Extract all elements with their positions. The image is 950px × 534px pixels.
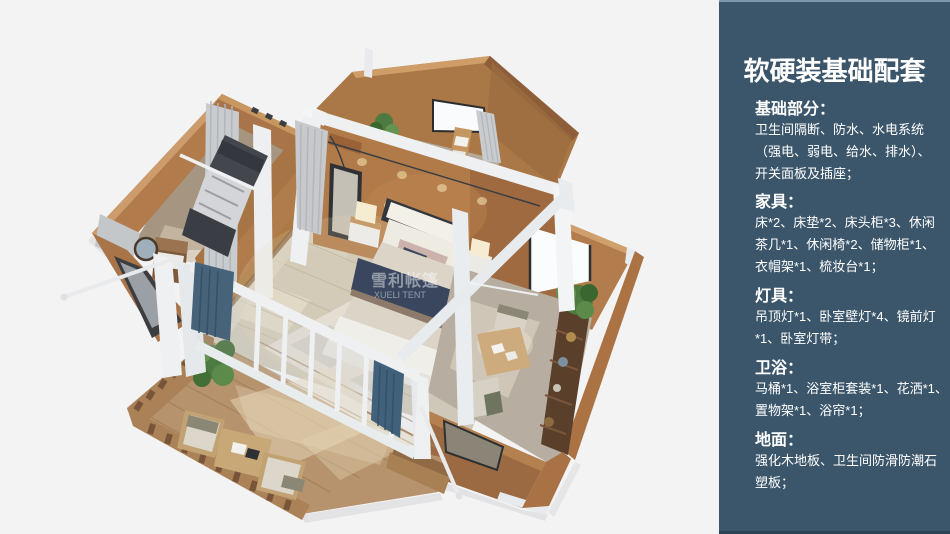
svg-text:XUELI TENT: XUELI TENT — [374, 290, 426, 300]
svg-text:雪利帐篷: 雪利帐篷 — [371, 271, 439, 290]
